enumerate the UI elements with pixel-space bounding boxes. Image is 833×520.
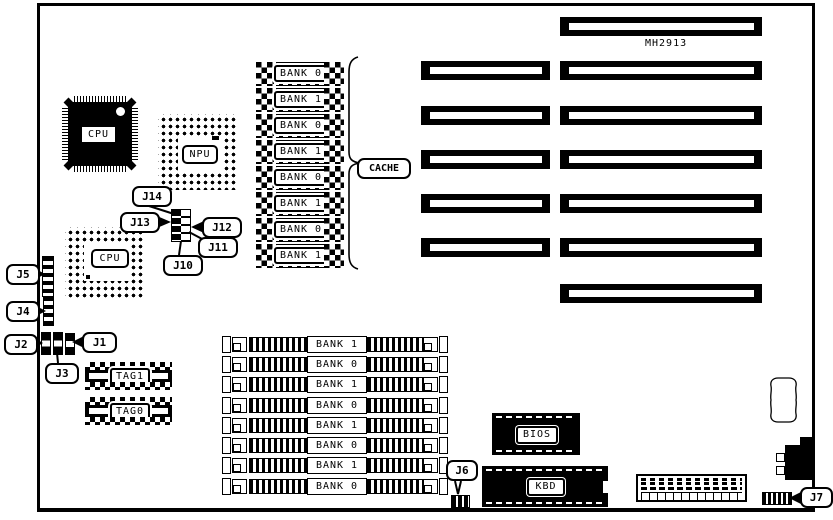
motherboard-diagram: MH2913 CPU NPU CPU BANK 0 BANK 1 BANK 0 … [0,0,833,520]
cache-group-label: CACHE [357,158,411,179]
jumper-label-j13: J13 [120,212,160,233]
jumper-label-j3: J3 [45,363,79,384]
jumper-label-j14: J14 [132,186,172,207]
jumper-label-j10: J10 [163,255,203,276]
jumper-label-j2: J2 [4,334,38,355]
jumper-label-j7: J7 [800,487,833,508]
jumper-label-j6: J6 [446,460,478,481]
jumper-label-j4: J4 [6,301,40,322]
jumper-label-j11: J11 [198,237,238,258]
jumper-label-j1: J1 [82,332,117,353]
connector-lines [0,0,833,520]
jumper-label-j5: J5 [6,264,40,285]
jumper-label-j12: J12 [202,217,242,238]
